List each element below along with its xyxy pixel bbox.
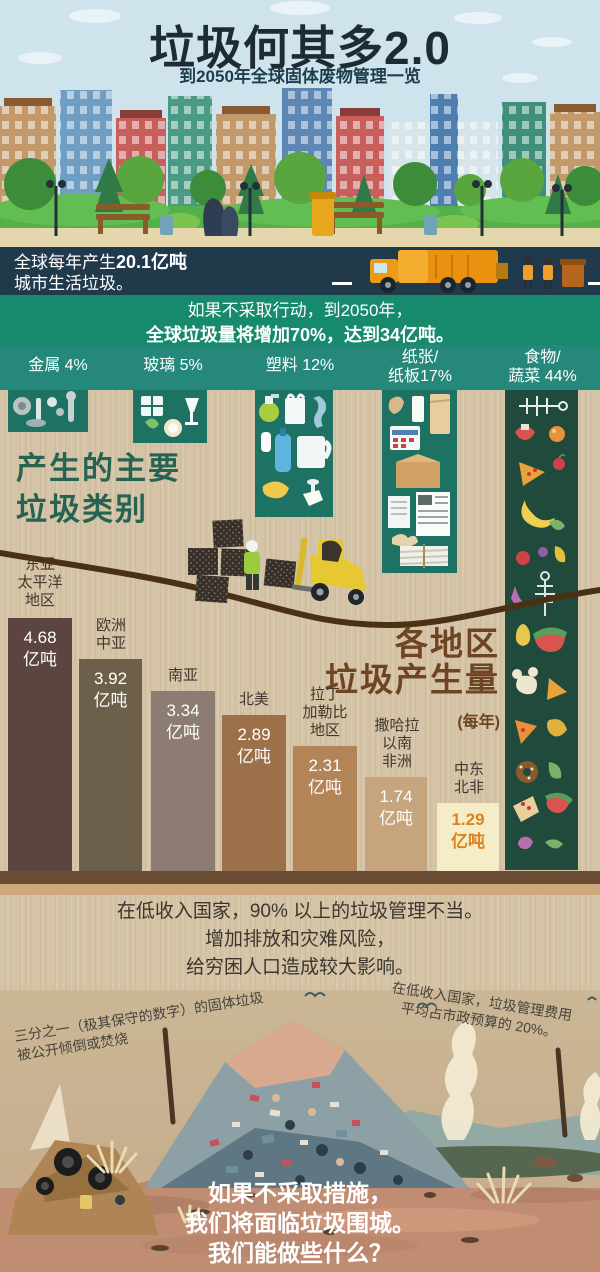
- bar-north-america: 2.89亿吨: [222, 715, 286, 871]
- main-content-area: 产生的主要 垃圾类别: [0, 390, 600, 990]
- page-subtitle: 到2050年全球固体废物管理一览: [0, 62, 600, 87]
- infographic-poster: 垃圾何其多2.0 到2050年全球固体废物管理一览: [0, 0, 600, 1272]
- chart-subtitle: (每年): [457, 714, 500, 731]
- bar-europe-central-asia: 3.92亿吨: [79, 659, 142, 871]
- category-label-glass: 玻璃 5%: [128, 356, 218, 375]
- bar-label-middle-east-north-africa: 中东北非: [431, 761, 507, 797]
- category-label-plastic: 塑料 12%: [245, 356, 355, 375]
- call-to-action: 如果不采取措施， 我们将面临垃圾围城。 我们能做些什么？: [0, 1178, 600, 1268]
- chart-baseline-shadow: [0, 884, 600, 895]
- chart-baseline: [0, 871, 600, 884]
- bar-label-south-asia: 南亚: [145, 667, 221, 685]
- warning-line1: 如果不采取行动，到2050年，: [0, 299, 600, 323]
- bar-label-latin-america-caribbean: 拉丁加勒比地区: [287, 686, 363, 740]
- warning-line2: 全球垃圾量将增加70%，达到34亿吨。: [0, 323, 600, 347]
- city-illustration: [0, 88, 600, 247]
- sanitation-workers-icon: [523, 257, 553, 289]
- bar-latin-america-caribbean: 2.31亿吨: [293, 746, 357, 871]
- bar-sub-saharan-africa: 1.74亿吨: [365, 777, 427, 871]
- bar-label-sub-saharan-africa: 撒哈拉以南非洲: [359, 717, 435, 771]
- category-label-metal: 金属 4%: [8, 356, 108, 375]
- stats-banner: 全球每年产生20.1亿吨 城市生活垃圾。: [0, 247, 600, 295]
- bar-east-asia-pacific: 4.68亿吨: [8, 618, 72, 871]
- category-label-food: 食物/蔬菜 44%: [495, 348, 590, 386]
- bar-label-europe-central-asia: 欧洲中亚: [73, 617, 149, 653]
- bar-south-asia: 3.34亿吨: [151, 691, 215, 871]
- landfill-scene: 三分之一（极其保守的数字）的固体垃圾 被公开倾倒或焚烧 在低收入国家，垃圾管理费…: [0, 990, 600, 1272]
- forklift-icon: [292, 538, 366, 605]
- category-label-paper: 纸张/纸板17%: [375, 348, 465, 386]
- park-path: [0, 228, 600, 247]
- warning-banner: 如果不采取行动，到2050年， 全球垃圾量将增加70%，达到34亿吨。: [0, 295, 600, 345]
- worker-icon: [244, 540, 260, 590]
- garbage-truck-illustration: [0, 247, 600, 295]
- bar-label-north-america: 北美: [216, 691, 292, 709]
- bar-label-east-asia-pacific: 东亚太平洋地区: [2, 556, 78, 610]
- category-band: 金属 4% 玻璃 5% 塑料 12% 纸张/纸板17% 食物/蔬菜 44%: [0, 345, 600, 390]
- impact-statement: 在低收入国家，90% 以上的垃圾管理不当。 增加排放和灾难风险， 给穷困人口造成…: [0, 898, 600, 982]
- bar-middle-east-north-africa: 1.29亿吨: [437, 803, 499, 871]
- garbage-bales-icon: [188, 519, 296, 603]
